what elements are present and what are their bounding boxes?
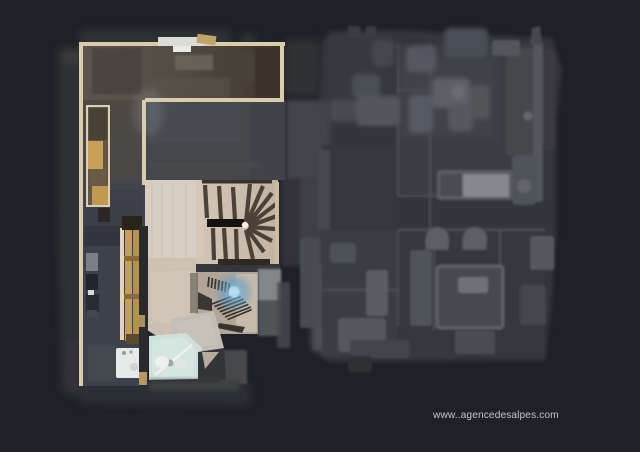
svg-text:www..agencedesalpes.com: www..agencedesalpes.com	[432, 410, 559, 421]
